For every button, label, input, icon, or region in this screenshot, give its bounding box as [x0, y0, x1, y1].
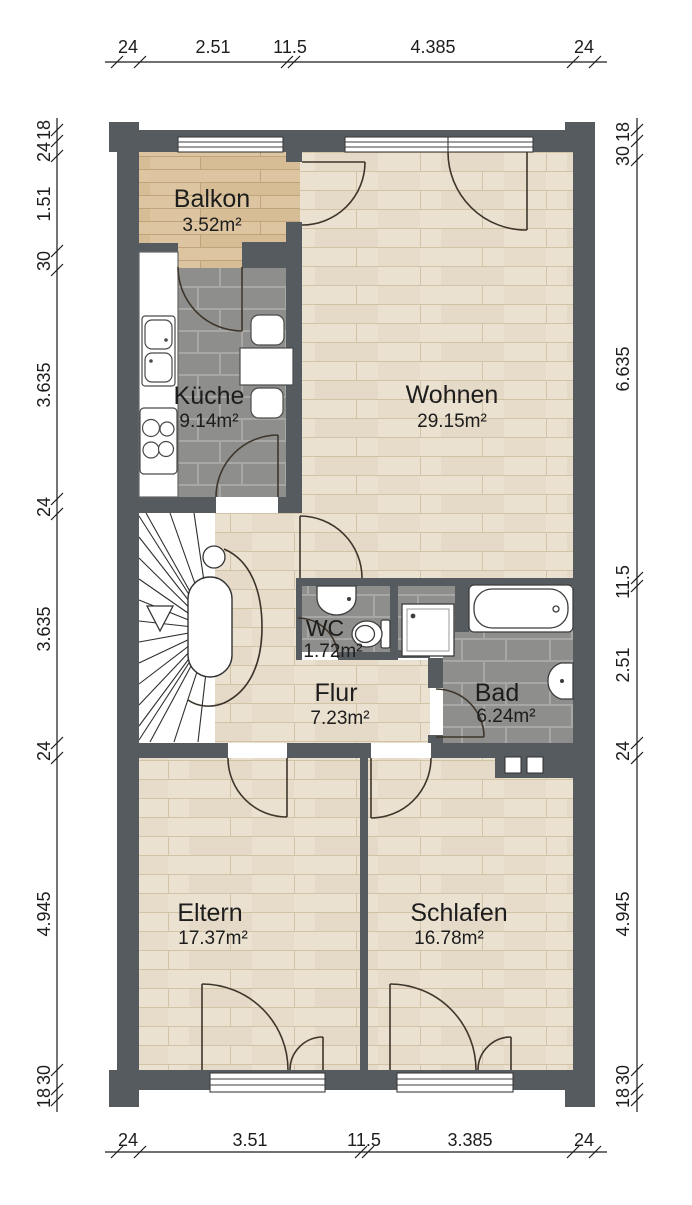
dim-bottom-3: 3.385 [447, 1130, 492, 1150]
dim-bottom-2: 11.5 [347, 1130, 381, 1150]
wall-eltern-schlafen [360, 758, 368, 1070]
bathtub-drain [553, 606, 559, 612]
flur-label: Flur [314, 679, 357, 707]
kitchen-sink-basin-1 [145, 320, 172, 349]
dim-right-3: 11.5 [613, 565, 633, 599]
kueche-label: Küche [174, 382, 245, 410]
wall-outer-right [573, 130, 595, 1100]
schlafen-label: Schlafen [410, 899, 507, 927]
window-schlafen [397, 1073, 513, 1092]
wall-mid-south-3 [431, 743, 495, 758]
wohnen-area: 29.15m² [417, 411, 487, 432]
dim-right-8: 18 [613, 1088, 633, 1108]
dim-right-0: 18 [613, 122, 633, 142]
dim-top-0: 24 [118, 37, 138, 57]
wall-kueche-south-west [139, 497, 216, 513]
pier-top-right [565, 122, 595, 152]
wc-area: 1.72m² [303, 641, 362, 662]
wohnen-label: Wohnen [406, 381, 499, 409]
dim-left-8: 4.945 [34, 891, 54, 936]
dim-top-4: 24 [574, 37, 594, 57]
schlafen-area: 16.78m² [414, 928, 484, 949]
eltern-floor [139, 758, 360, 1070]
bad-area: 6.24m² [476, 706, 535, 727]
balkon-area: 3.52m² [182, 215, 241, 236]
dim-left-7: 24 [34, 741, 54, 761]
dim-left-4: 3.635 [34, 362, 54, 407]
bad-label: Bad [475, 679, 519, 707]
wall-balkon-kueche-west [139, 243, 178, 252]
kitchen-table [240, 348, 293, 385]
dim-left-1: 24 [34, 142, 54, 162]
dim-top-3: 4.385 [410, 37, 455, 57]
dim-bottom-0: 24 [118, 1130, 138, 1150]
eltern-area: 17.37m² [178, 928, 248, 949]
kueche-area: 9.14m² [179, 411, 238, 432]
stair-newel [203, 546, 225, 568]
shaft-box-1 [505, 757, 521, 773]
dim-right-4: 2.51 [613, 647, 633, 682]
dim-right-6: 4.945 [613, 891, 633, 936]
dim-top-2: 11.5 [273, 37, 307, 57]
kitchen-chair-1 [251, 315, 284, 345]
burner [143, 420, 160, 437]
wall-outer-left [117, 130, 139, 1100]
dim-top-1: 2.51 [195, 37, 230, 57]
wall-balkon-stub-top [286, 152, 302, 162]
dim-left-2: 1.51 [34, 186, 54, 221]
burner [160, 422, 174, 436]
wall-mid-south-2 [287, 743, 371, 758]
kitchen-chair-2 [251, 388, 283, 418]
window-eltern [210, 1073, 325, 1092]
pier-top-left [109, 122, 139, 152]
wall-bad-west-upper [428, 658, 443, 688]
wall-balkon-kueche-east [242, 242, 302, 268]
dim-left-3: 30 [34, 251, 54, 271]
stair-core [188, 577, 232, 677]
cooktop [140, 408, 177, 474]
floorplan-page: Balkon 3.52m² Küche 9.14m² Wohnen 29.15m… [0, 0, 692, 1200]
dim-left-9: 30 [34, 1065, 54, 1085]
window-wohnen [345, 137, 533, 152]
wc-label: WC [306, 615, 344, 641]
dim-right-5: 24 [613, 741, 633, 761]
wall-wc-east [390, 586, 398, 660]
balkon-label: Balkon [174, 185, 250, 213]
window-balkon [178, 137, 283, 152]
dim-bottom-1: 3.51 [232, 1130, 267, 1150]
kitchen-sink-basin-2 [145, 353, 172, 382]
wall-wc-west [296, 586, 302, 660]
wall-mid-south-1 [139, 743, 228, 758]
floorplan-drawing: Balkon 3.52m² Küche 9.14m² Wohnen 29.15m… [0, 0, 692, 1200]
wall-shower-tub-stub [455, 586, 469, 632]
dim-left-0: 18 [34, 120, 54, 140]
flur-area: 7.23m² [310, 708, 369, 729]
shaft-box-2 [527, 757, 543, 773]
dim-right-7: 30 [613, 1065, 633, 1085]
dim-left-6: 3.635 [34, 606, 54, 651]
dim-bottom-4: 24 [574, 1130, 594, 1150]
dim-right-1: 30 [613, 146, 633, 166]
wall-kueche-south-east [278, 497, 302, 513]
dim-left-10: 18 [34, 1088, 54, 1108]
balkon-threshold [178, 243, 242, 269]
burner [143, 442, 159, 458]
pier-bottom-right [565, 1070, 595, 1107]
toilet-seat [356, 626, 375, 643]
eltern-label: Eltern [177, 899, 242, 927]
burner [159, 442, 174, 457]
dim-right-2: 6.635 [613, 346, 633, 391]
dim-left-5: 24 [34, 497, 54, 517]
wohnen-floor [300, 152, 573, 578]
pier-bottom-left [109, 1070, 139, 1107]
